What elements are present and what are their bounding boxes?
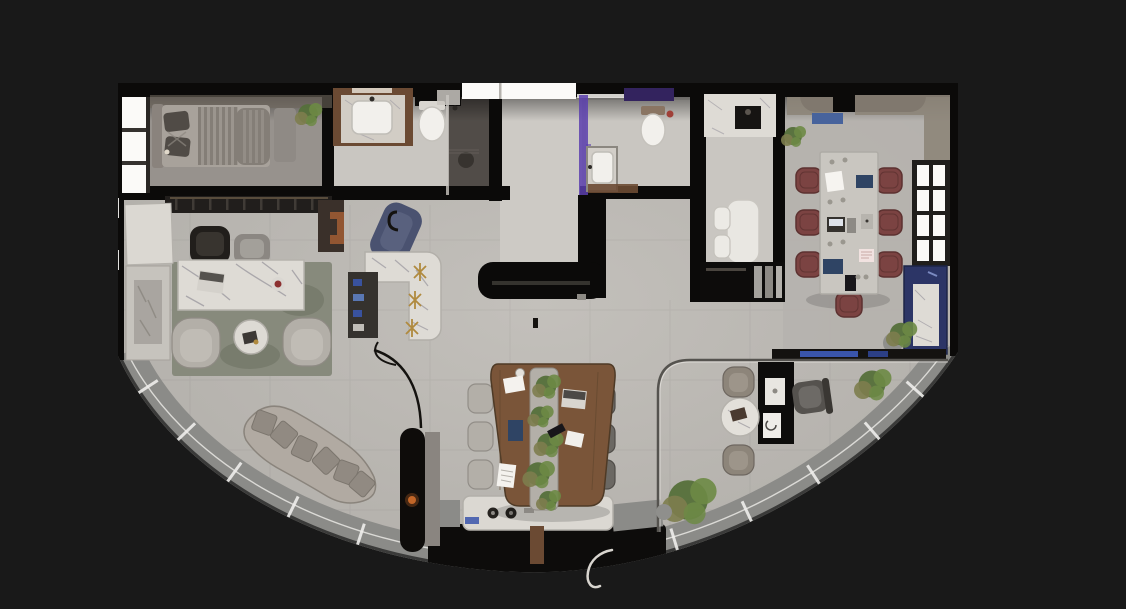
chair: [714, 207, 730, 230]
blue-folder: [823, 259, 843, 274]
pillow: [163, 110, 190, 132]
floor-plan-canvas: [0, 0, 1126, 609]
black-desk: [758, 362, 794, 444]
conference-table: [820, 152, 878, 294]
chairs-left: [468, 384, 493, 489]
task-chair: [791, 378, 834, 416]
skylight-blue: [812, 113, 843, 124]
notebook: [508, 420, 523, 441]
bed: [152, 104, 270, 168]
leaning-board: [125, 203, 173, 265]
balcony-post: [530, 526, 544, 564]
faucet: [370, 97, 375, 102]
armchair: [283, 318, 331, 366]
toilet: [419, 101, 445, 141]
bedroom-window: [122, 97, 148, 193]
taupe-chair: [723, 367, 754, 397]
tablet: [847, 218, 856, 233]
tablet: [845, 275, 856, 291]
drinks-shelf: [348, 272, 378, 338]
bedside-lamp: [165, 150, 170, 155]
entry-console: [478, 262, 606, 299]
book-ledge: [772, 349, 946, 359]
laptop: [827, 217, 845, 232]
fireplace-column: [400, 428, 440, 552]
wood-mat: [588, 184, 638, 193]
plant-pot: [656, 504, 672, 520]
shower-stool: [458, 152, 474, 168]
sill-bench-right: [611, 499, 664, 531]
sink: [352, 101, 392, 134]
paper: [825, 171, 844, 192]
window: [912, 160, 950, 266]
stone-console: [126, 266, 170, 360]
armchair: [172, 318, 220, 368]
floor-detail: [533, 318, 538, 328]
bed-bench: [274, 108, 296, 162]
closet-band: [165, 196, 332, 213]
entry-console-edge: [492, 281, 590, 285]
black-cabinet: [700, 262, 785, 302]
laptop: [561, 389, 587, 409]
marble-desk: [178, 260, 304, 310]
shower-drain: [453, 106, 458, 111]
door-stop: [577, 294, 586, 300]
shower-glass: [446, 95, 449, 195]
soap-dispenser: [667, 111, 674, 118]
round-side-table: [234, 320, 268, 354]
taupe-chair: [723, 445, 754, 475]
chair: [714, 235, 730, 258]
laptop: [197, 270, 226, 293]
toilet: [641, 106, 665, 146]
blue-folder: [856, 175, 873, 188]
executive-chair: [190, 226, 230, 264]
round-marble-table: [721, 398, 759, 436]
floor-plan-render: [0, 0, 1126, 609]
